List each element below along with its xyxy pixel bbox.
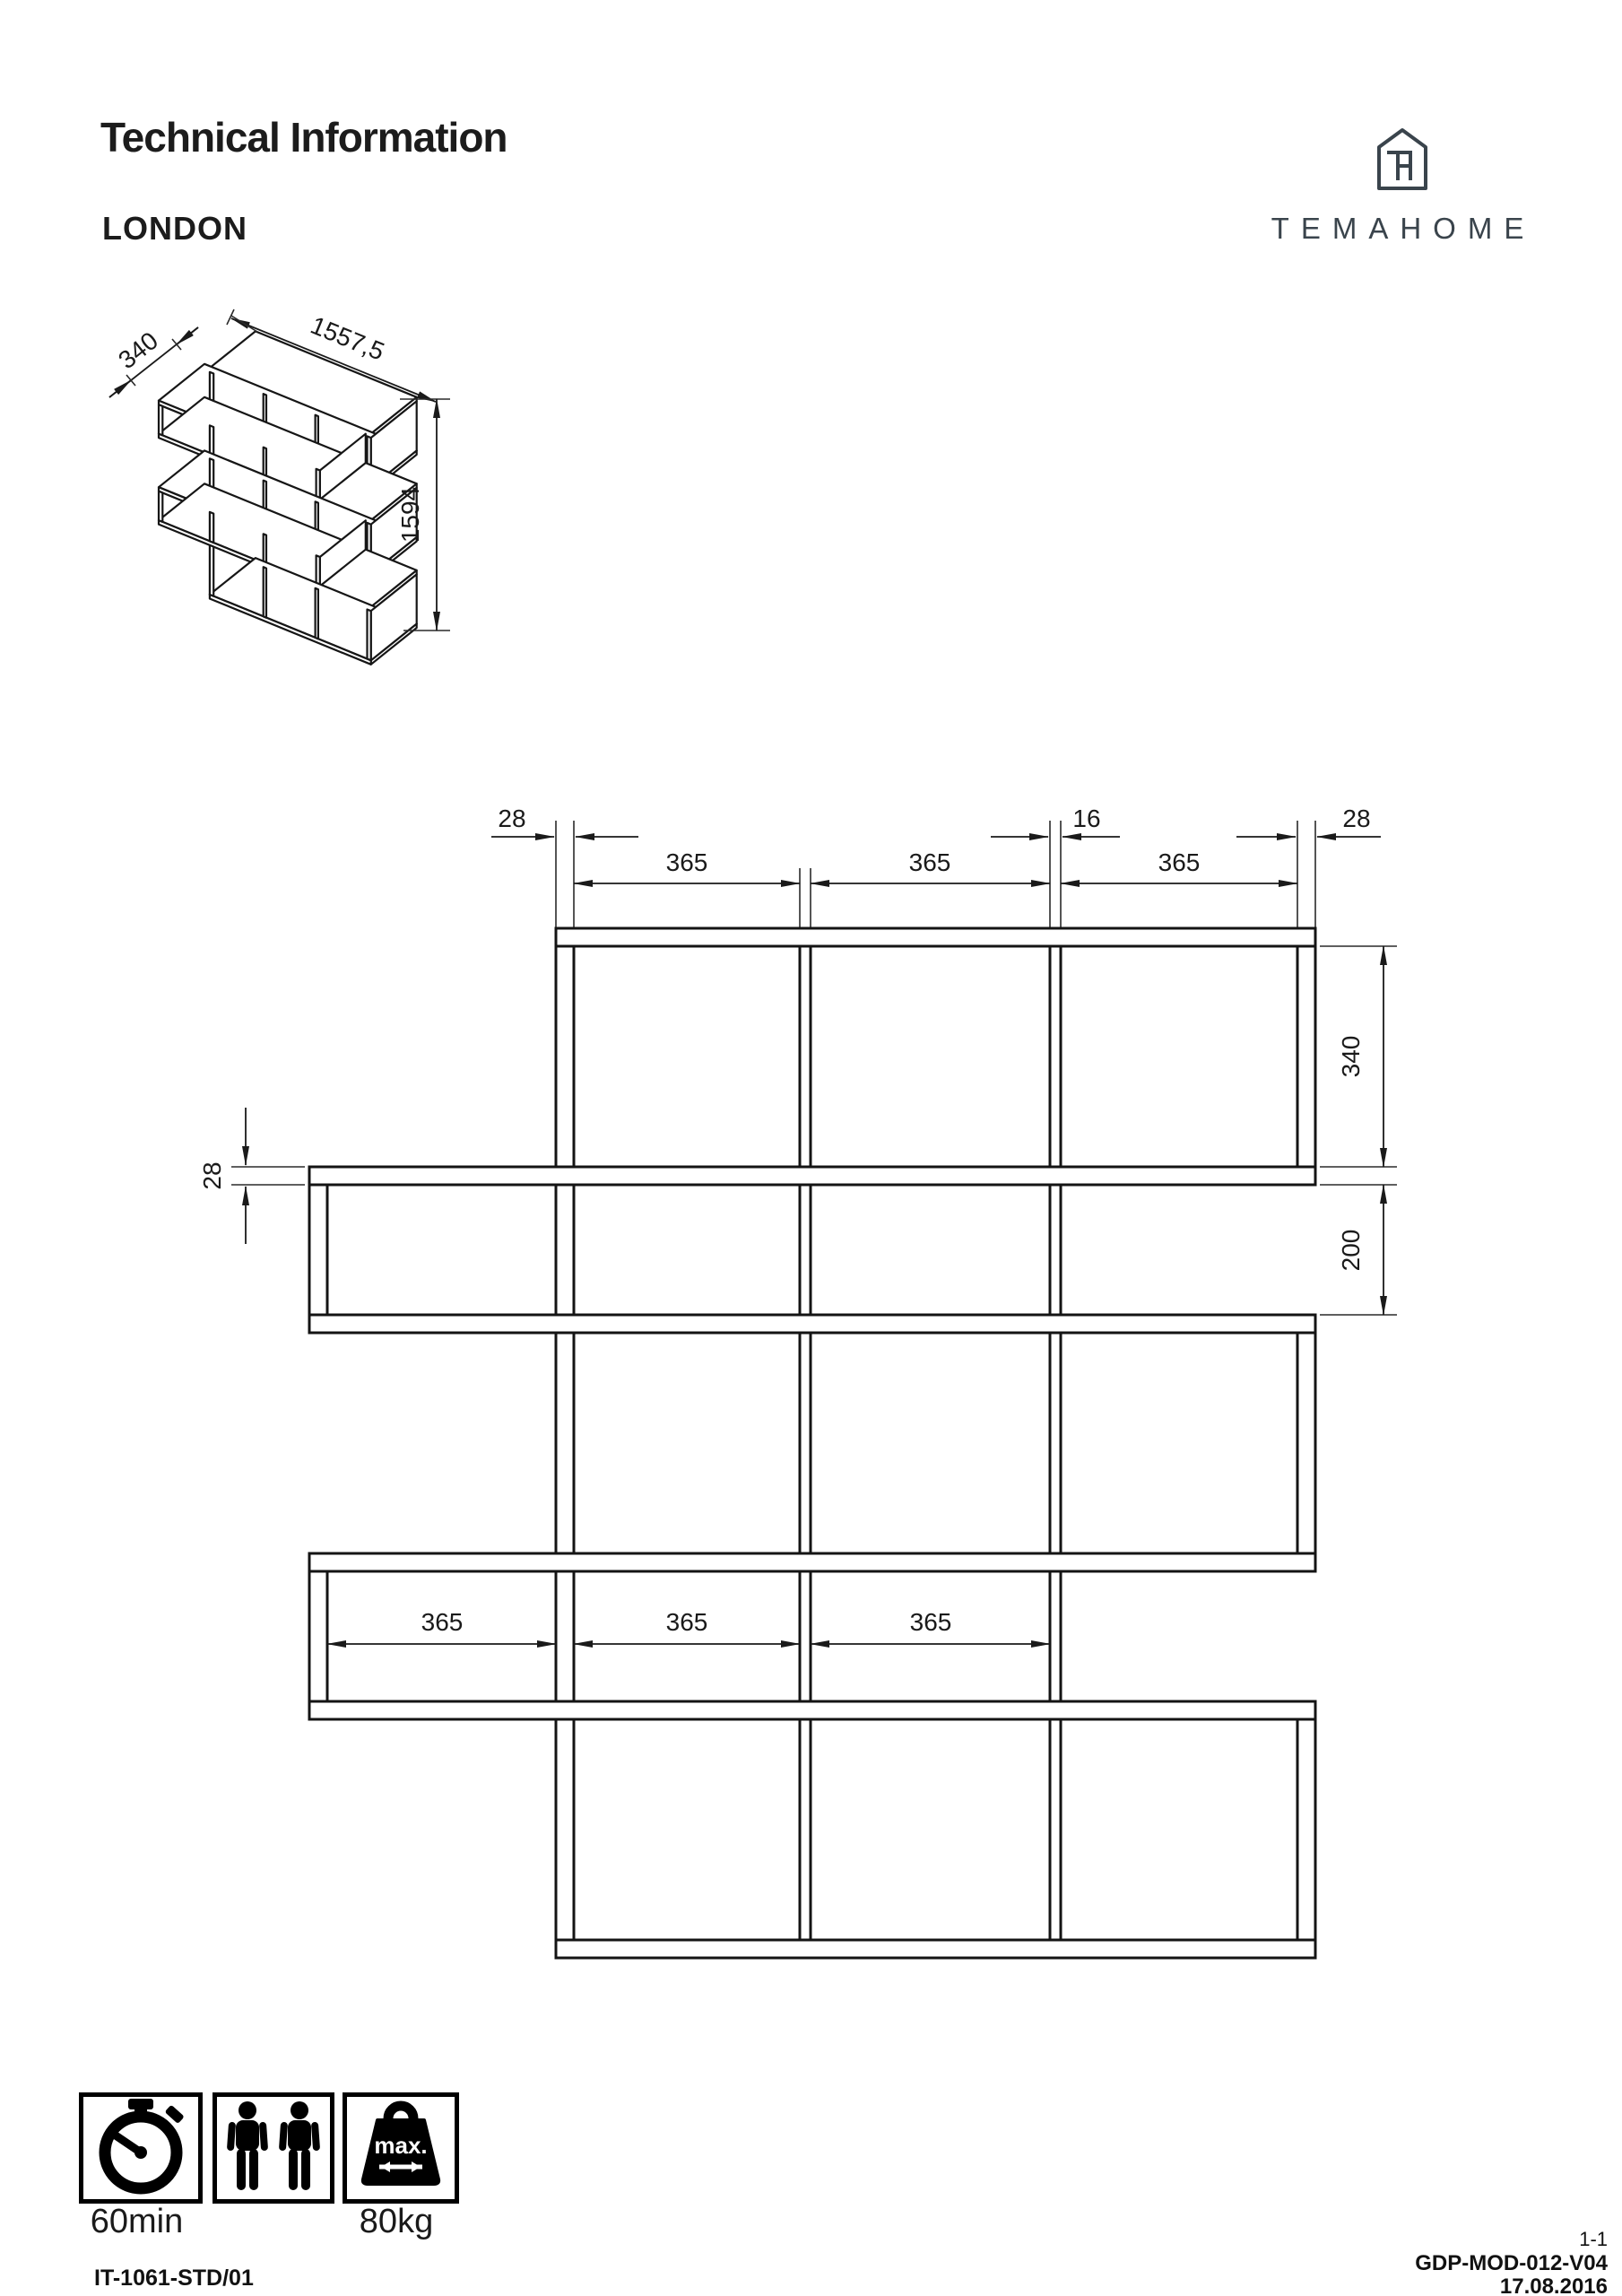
shelf-plank-5 (309, 1701, 1315, 1719)
revision-date: 17.08.2016 (1500, 2274, 1608, 2296)
dim-left-28: 28 (498, 804, 525, 832)
two-person-icon (217, 2097, 330, 2199)
reference-code: GDP-MOD-012-V04 (1415, 2251, 1608, 2276)
iso-height-dim: 1594 (396, 487, 424, 543)
sheet-number: 1-1 (1579, 2228, 1608, 2251)
max-label: max. (374, 2132, 427, 2159)
dim-row-tall: 340 (1337, 1036, 1365, 1078)
shelf-plank-1 (556, 928, 1315, 946)
dim-row4-cell-3: 365 (910, 1608, 952, 1636)
technical-sheet-page: Technical Information LONDON TEMAHOME 34… (0, 0, 1622, 2296)
isometric-view (159, 331, 417, 664)
shelf-plank-2 (309, 1167, 1315, 1185)
stopwatch-icon (83, 2097, 198, 2199)
two-person-icon-box (213, 2092, 334, 2204)
max-load-label: 80kg (338, 2203, 455, 2241)
shelf-plank-4 (309, 1553, 1315, 1571)
dim-16: 16 (1072, 804, 1100, 832)
dim-right-28: 28 (1342, 804, 1370, 832)
dim-top-cell-2: 365 (909, 848, 951, 876)
dim-row-short: 200 (1337, 1230, 1365, 1272)
dim-top-cell-3: 365 (1158, 848, 1201, 876)
shelf-plank-6 (556, 1940, 1315, 1958)
technical-drawing: 340 1557,5 1594 28 (0, 0, 1622, 2296)
front-view: 28 16 28 365 365 365 (198, 804, 1397, 1958)
document-code: IT-1061-STD/01 (94, 2266, 254, 2292)
max-load-icon-box: max. (343, 2092, 459, 2204)
dim-plank-thickness: 28 (198, 1161, 226, 1189)
shelf-plank-3 (309, 1315, 1315, 1333)
dim-top-cell-1: 365 (666, 848, 708, 876)
weight-icon: max. (347, 2097, 455, 2199)
assembly-time-icon-box (79, 2092, 203, 2204)
assembly-time-label: 60min (54, 2203, 220, 2241)
dim-row4-cell-1: 365 (421, 1608, 464, 1636)
iso-depth-dim: 340 (113, 326, 163, 374)
dim-row4-cell-2: 365 (666, 1608, 708, 1636)
